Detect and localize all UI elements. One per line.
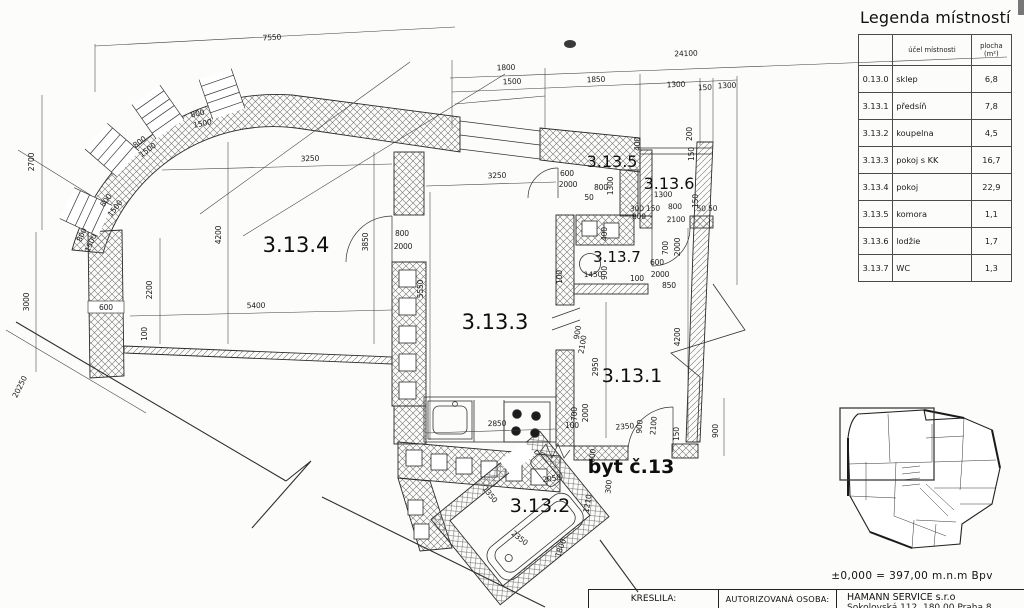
legend-header-id [859,35,893,66]
dimension-label: 200 [685,127,694,141]
dimension-label: 3250 [300,154,319,164]
room-number-label: 3.13.3 [462,310,529,334]
overview-mini-plan [840,408,1000,548]
room-number-label: 3.13.2 [510,495,570,517]
dimension-label: 400 [633,137,642,151]
dimension-label: 900 [634,419,644,434]
komora-door [528,168,558,198]
dimension-label: 5400 [247,301,266,310]
room-number-label: 3.13.1 [602,365,662,387]
room-number-label: 3.13.7 [593,248,641,266]
dimension-label: 700 [570,407,579,421]
legend-table-body: 0.13.0sklep6,83.13.1předsíň7,83.13.2koup… [859,66,1012,282]
title-block: KRESLILA: AUTORIZOVANÁ OSOBA: HAMANN SER… [588,589,1024,608]
dimension-label: 3000 [22,292,31,311]
dimension-label: 7550 [262,33,281,43]
legend-panel: Legenda místností účel místnosti plocha … [858,8,1012,282]
dimension-label: 2350 [615,421,635,432]
dimension-label: 800 [668,202,682,211]
legend-room-id: 3.13.5 [859,201,893,228]
room-number-label: 3.13.6 [644,174,695,193]
dimension-label: 1300 [606,176,615,195]
room-number-label: 3.13.5 [587,152,638,171]
ink-smudge [564,40,576,48]
hall-left-wall-lower [556,350,574,446]
dimension-label: 20250 [11,374,30,399]
legend-room-id: 3.13.4 [859,174,893,201]
dimension-label: 850 [662,281,676,290]
dimension-label: 4200 [673,327,682,346]
legend-title: Legenda místností [860,8,1012,27]
hall-left-wall-upper [556,215,574,305]
partition-wall-upper [394,152,424,215]
legend-room-id: 3.13.3 [859,147,893,174]
legend-room-name: předsíň [893,93,972,120]
elevation-note: ±0,000 = 397,00 m.n.m Bpv [806,570,1018,582]
dimension-label: 3250 [487,171,506,181]
legend-room-id: 3.13.1 [859,93,893,120]
legend-room-name: pokoj s KK [893,147,972,174]
dimension-label: 2000 [581,403,590,422]
kitchen-sink [428,401,472,439]
legend-room-id: 3.13.6 [859,228,893,255]
boundary-break [252,461,311,528]
dimension-label: 800 [632,212,646,221]
legend-row: 3.13.6lodžie1,7 [859,228,1012,255]
legend-row: 3.13.5komora1,1 [859,201,1012,228]
legend-room-area: 22,9 [971,174,1011,201]
legend-room-id: 3.13.2 [859,120,893,147]
dimension-label: 2850 [488,419,507,428]
dimension-label: 100 [140,327,149,341]
legend-room-area: 1,7 [971,228,1011,255]
dimension-label: 2950 [591,357,600,376]
legend-header-purpose: účel místnosti [893,35,972,66]
dimension-label: 1850 [586,75,605,85]
dimension-label: 24100 [674,49,698,59]
drawing-sheet: 7550241001800150018501300150130027003000… [0,0,1024,608]
dimension-label: 600 [99,303,113,312]
wc-bottom-wall [574,284,648,294]
dimension-label: 400 [600,227,609,241]
dimension-label: 1300 [666,80,685,90]
room4-bottom-wall [124,346,392,364]
site-boundary [16,284,745,607]
dimension-label: 700 [661,241,670,255]
dimension-label: 300 [603,479,613,494]
legend-room-name: koupelna [893,120,972,147]
dimension-label: 2350 [509,529,529,548]
room-number-label: 3.13.4 [263,233,330,257]
dimension-label: 50 50 [697,204,718,213]
legend-room-area: 16,7 [971,147,1011,174]
dimension-label: 1300 [717,81,736,91]
dimension-label: 5550 [416,279,425,298]
dimension-label: 100 [555,270,564,284]
drawn-by-label: KRESLILA: [589,590,719,608]
partition-wall-lower [394,406,426,444]
dimension-label: 2100 [648,416,659,436]
legend-room-name: lodžie [893,228,972,255]
legend-room-id: 0.13.0 [859,66,893,93]
legend-row: 3.13.3pokoj s KK16,7 [859,147,1012,174]
dimension-label: 2200 [145,280,154,299]
legend-room-name: sklep [893,66,972,93]
dimension-label: 900 [600,266,609,280]
dimension-label: 100 [565,421,579,430]
dimension-label: 600 [650,258,664,267]
top-wall-window [460,121,540,159]
legend-row: 3.13.1předsíň7,8 [859,93,1012,120]
legend-room-area: 6,8 [971,66,1011,93]
dimension-label: 150 [698,83,713,92]
dimension-label: 4200 [214,225,223,244]
dimension-label: 1800 [496,63,515,73]
dimension-label: 150 [687,147,696,161]
dimension-label: 150 [672,427,681,441]
boundary-line [16,322,286,481]
dimension-label: 2100 [576,334,588,354]
company-name: HAMANN SERVICE s.r.o [847,592,1024,603]
dimension-label: 2700 [27,152,36,171]
company-cell: HAMANN SERVICE s.r.o Sokolovská 112, 180… [837,590,1024,608]
legend-room-id: 3.13.7 [859,255,893,282]
legend-header-area: plocha (m²) [971,35,1011,66]
dimension-label: 2000 [394,242,413,251]
stair-break-line [671,284,745,442]
hall-bottom-wall-b [672,444,698,458]
dimension-label: 900 [711,424,720,438]
authorized-person-label: AUTORIZOVANÁ OSOBA: [719,590,837,608]
legend-room-name: WC [893,255,972,282]
dimension-label: 2100 [667,215,686,224]
dimension-label: 100 [630,274,644,283]
legend-room-name: komora [893,201,972,228]
legend-room-name: pokoj [893,174,972,201]
legend-header-row: účel místnosti plocha (m²) [859,35,1012,66]
dimension-label: 2000 [673,237,682,256]
apartment-label: byt č.13 [588,456,675,478]
dimension-label: 3850 [361,232,370,251]
company-address: Sokolovská 112, 180 00 Praha 8 [847,603,1024,608]
dimension-label: 2000 [651,270,670,279]
legend-table: účel místnosti plocha (m²) 0.13.0sklep6,… [858,34,1012,282]
boundary-line [600,540,638,592]
legend-row: 3.13.2koupelna4,5 [859,120,1012,147]
dimension-label: 800 [395,229,409,238]
dimension-label: 50 [584,193,594,202]
dimension-label: 1350 [481,484,500,504]
dimension-label: 2000 [559,180,578,189]
legend-row: 3.13.7WC1,3 [859,255,1012,282]
dimension-label: 1500 [502,77,521,87]
legend-room-area: 7,8 [971,93,1011,120]
dimension-label: 600 [560,169,574,178]
legend-room-area: 1,3 [971,255,1011,282]
scan-edge-artifact [1018,0,1024,15]
legend-room-area: 1,1 [971,201,1011,228]
legend-row: 0.13.0sklep6,8 [859,66,1012,93]
legend-room-area: 4,5 [971,120,1011,147]
legend-row: 3.13.4pokoj22,9 [859,174,1012,201]
